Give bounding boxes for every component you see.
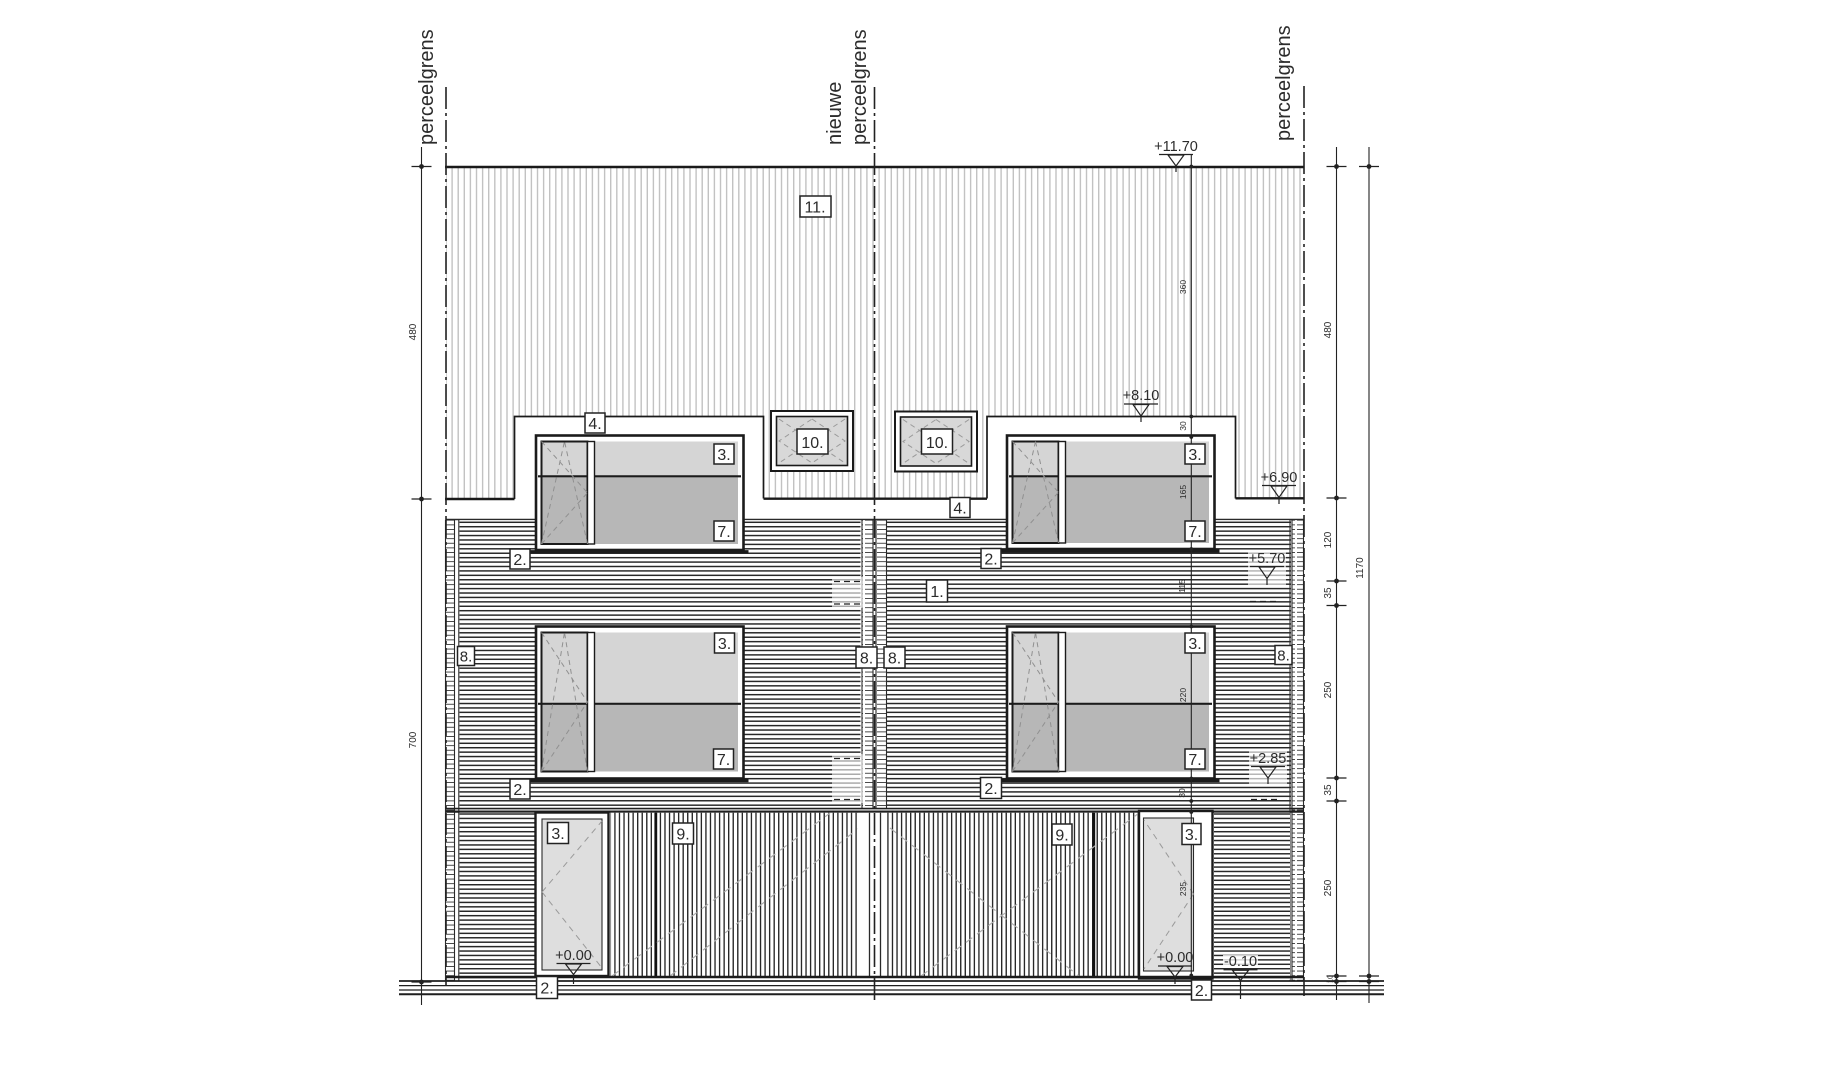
svg-text:8.: 8. bbox=[1277, 648, 1290, 665]
svg-text:165: 165 bbox=[1178, 485, 1188, 499]
svg-text:30: 30 bbox=[1178, 421, 1188, 431]
svg-text:235: 235 bbox=[1178, 882, 1188, 896]
svg-text:2.: 2. bbox=[513, 782, 526, 799]
svg-text:220: 220 bbox=[1178, 688, 1188, 702]
svg-text:700: 700 bbox=[408, 731, 419, 748]
svg-text:35: 35 bbox=[1323, 587, 1334, 599]
svg-text:250: 250 bbox=[1323, 681, 1334, 698]
svg-text:115: 115 bbox=[1177, 579, 1187, 593]
svg-text:2.: 2. bbox=[984, 781, 997, 798]
svg-text:2.: 2. bbox=[1195, 983, 1208, 1000]
svg-text:+0.00: +0.00 bbox=[555, 948, 592, 964]
svg-text:2.: 2. bbox=[513, 552, 526, 569]
svg-text:7.: 7. bbox=[1188, 752, 1201, 769]
svg-text:250: 250 bbox=[1323, 879, 1334, 896]
svg-text:3.: 3. bbox=[717, 447, 730, 464]
svg-text:10: 10 bbox=[1328, 975, 1335, 983]
svg-text:30: 30 bbox=[1177, 788, 1187, 798]
svg-text:perceelgrens: perceelgrens bbox=[849, 29, 871, 145]
svg-text:3.: 3. bbox=[551, 826, 564, 843]
svg-text:10.: 10. bbox=[926, 435, 948, 452]
svg-text:+11.70: +11.70 bbox=[1154, 139, 1198, 155]
svg-text:+8.10: +8.10 bbox=[1123, 388, 1160, 404]
svg-text:11.: 11. bbox=[804, 200, 825, 217]
svg-text:perceelgrens: perceelgrens bbox=[1273, 25, 1295, 141]
svg-text:+5.70: +5.70 bbox=[1249, 551, 1286, 567]
svg-text:7.: 7. bbox=[717, 524, 730, 541]
svg-text:nieuwe: nieuwe bbox=[824, 82, 846, 145]
svg-text:7.: 7. bbox=[717, 752, 730, 769]
svg-text:8.: 8. bbox=[460, 649, 473, 666]
svg-text:7.: 7. bbox=[1188, 524, 1201, 541]
svg-text:2.: 2. bbox=[984, 552, 997, 569]
svg-text:1.: 1. bbox=[930, 584, 943, 601]
svg-text:4.: 4. bbox=[588, 416, 601, 433]
svg-text:perceelgrens: perceelgrens bbox=[416, 29, 438, 145]
svg-text:-0.10: -0.10 bbox=[1224, 954, 1257, 970]
svg-text:8.: 8. bbox=[888, 651, 901, 668]
svg-text:35: 35 bbox=[1323, 784, 1334, 796]
svg-text:8.: 8. bbox=[860, 651, 873, 668]
svg-text:10.: 10. bbox=[801, 435, 823, 452]
svg-text:+0.00: +0.00 bbox=[1157, 950, 1194, 966]
svg-text:3.: 3. bbox=[1188, 447, 1201, 464]
svg-text:360: 360 bbox=[1178, 280, 1188, 294]
svg-text:3.: 3. bbox=[1188, 636, 1201, 653]
svg-text:9.: 9. bbox=[676, 827, 689, 844]
svg-text:+6.90: +6.90 bbox=[1261, 470, 1298, 486]
svg-text:1170: 1170 bbox=[1355, 557, 1366, 579]
svg-text:4.: 4. bbox=[953, 501, 966, 518]
svg-text:3.: 3. bbox=[1185, 827, 1198, 844]
svg-text:3.: 3. bbox=[718, 636, 731, 653]
svg-text:2.: 2. bbox=[540, 981, 553, 998]
svg-text:480: 480 bbox=[1323, 321, 1334, 338]
svg-text:480: 480 bbox=[408, 323, 419, 340]
svg-text:9.: 9. bbox=[1055, 828, 1068, 845]
svg-text:120: 120 bbox=[1323, 531, 1334, 548]
svg-text:+2.85: +2.85 bbox=[1250, 751, 1287, 767]
